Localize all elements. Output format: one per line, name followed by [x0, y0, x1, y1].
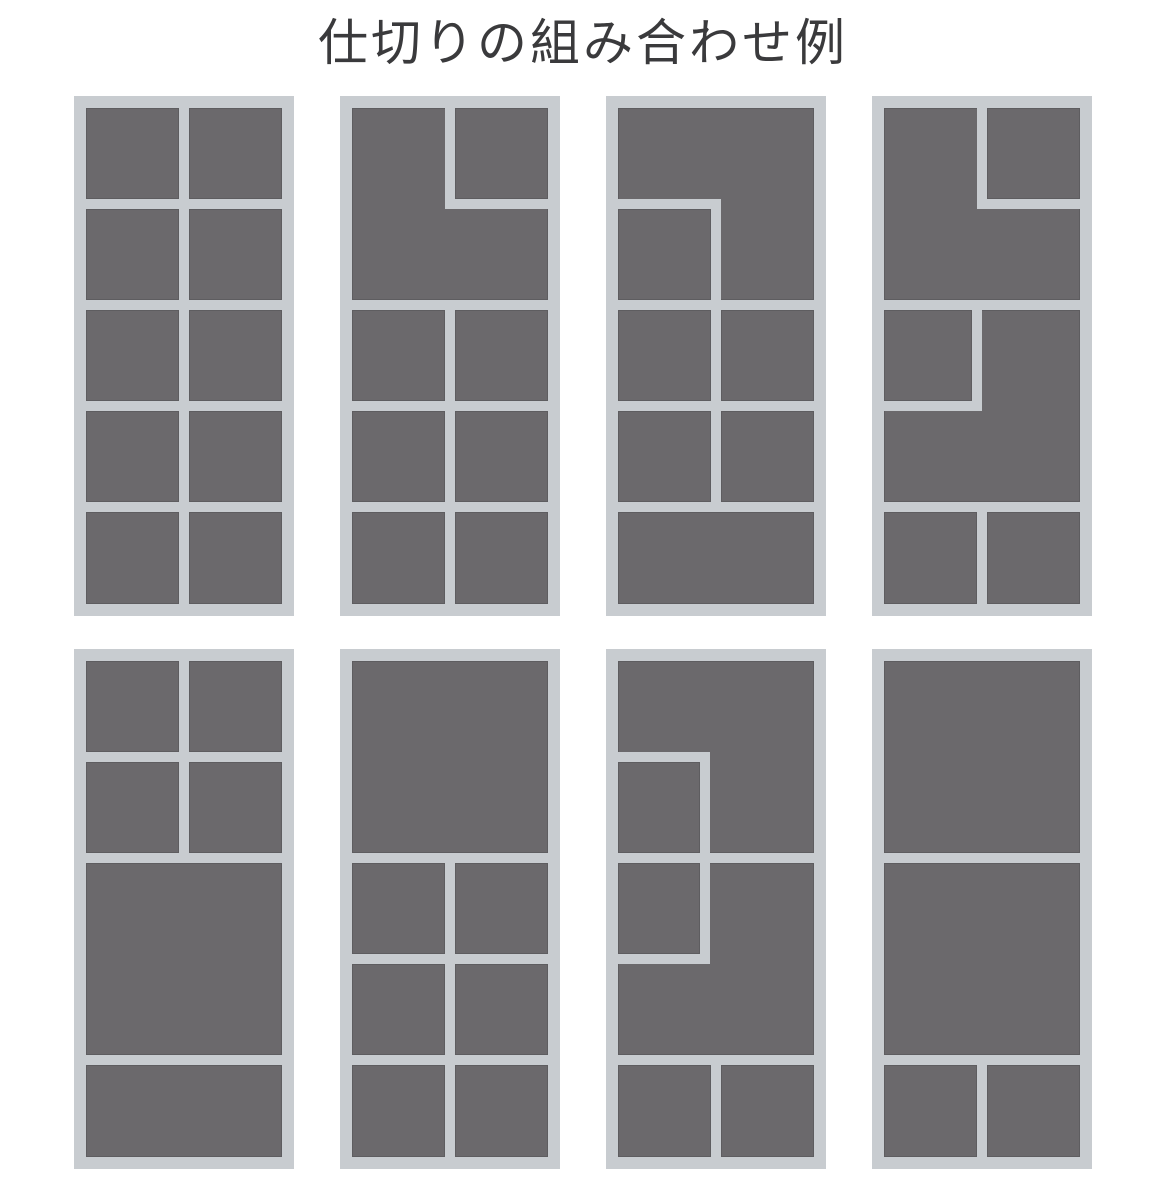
diagram-canvas: 仕切りの組み合わせ例	[0, 0, 1166, 1200]
compartment-cell	[352, 310, 445, 401]
compartment-cell	[721, 1065, 814, 1157]
compartment-cell	[86, 863, 282, 1055]
compartment-cell	[455, 108, 548, 199]
panel-8-two-big-two-small	[872, 649, 1092, 1169]
compartment-cell	[987, 108, 1080, 199]
compartment-cell	[618, 512, 814, 604]
compartment-cell	[86, 661, 179, 752]
compartment-cell	[352, 661, 548, 853]
compartment-cell	[884, 1065, 977, 1157]
compartment-cell	[86, 762, 179, 853]
compartment-cell	[987, 1065, 1080, 1157]
compartment-cell	[618, 310, 711, 401]
compartment-cell	[189, 762, 282, 853]
compartment-cell	[884, 661, 1080, 853]
compartment-cell	[987, 512, 1080, 604]
compartment-cell	[189, 310, 282, 401]
compartment-cell	[721, 411, 814, 502]
panel-6-big-top-grid-2x3	[340, 649, 560, 1169]
diagram-title: 仕切りの組み合わせ例	[0, 12, 1166, 74]
compartment-cell	[189, 512, 282, 604]
compartment-cell	[721, 310, 814, 401]
compartment-cell	[86, 411, 179, 502]
compartment-cell	[86, 1065, 282, 1157]
compartment-cell	[618, 209, 711, 300]
compartment-cell	[884, 310, 972, 401]
compartment-cell	[352, 1065, 445, 1157]
compartment-cell	[618, 411, 711, 502]
panel-4-double-l	[872, 96, 1092, 616]
compartment-cell	[884, 863, 1080, 1055]
compartment-cell	[189, 108, 282, 199]
compartment-cell	[86, 512, 179, 604]
compartment-cell	[86, 108, 179, 199]
compartment-cell	[455, 411, 548, 502]
compartment-cell	[884, 512, 977, 604]
compartment-cell	[189, 411, 282, 502]
compartment-cell	[455, 310, 548, 401]
compartment-cell	[455, 1065, 548, 1157]
panel-3-inverted-l-bottom-full	[606, 96, 826, 616]
compartment-cell	[455, 512, 548, 604]
compartment-cell	[352, 512, 445, 604]
compartment-cell	[618, 762, 700, 853]
panel-2-ltop-grid-2x3	[340, 96, 560, 616]
compartment-cell	[86, 209, 179, 300]
compartment-cell	[352, 411, 445, 502]
compartment-cell	[618, 1065, 711, 1157]
panel-1-grid-2x5	[74, 96, 294, 616]
compartment-cell	[352, 863, 445, 954]
compartment-cell	[455, 863, 548, 954]
compartment-cell	[189, 661, 282, 752]
compartment-cell	[86, 310, 179, 401]
compartment-cell	[455, 964, 548, 1055]
panel-7-double-l-narrow	[606, 649, 826, 1169]
compartment-cell	[352, 964, 445, 1055]
compartment-cell	[189, 209, 282, 300]
panel-5-grid-2x2-two-full	[74, 649, 294, 1169]
compartment-cell	[618, 863, 700, 954]
